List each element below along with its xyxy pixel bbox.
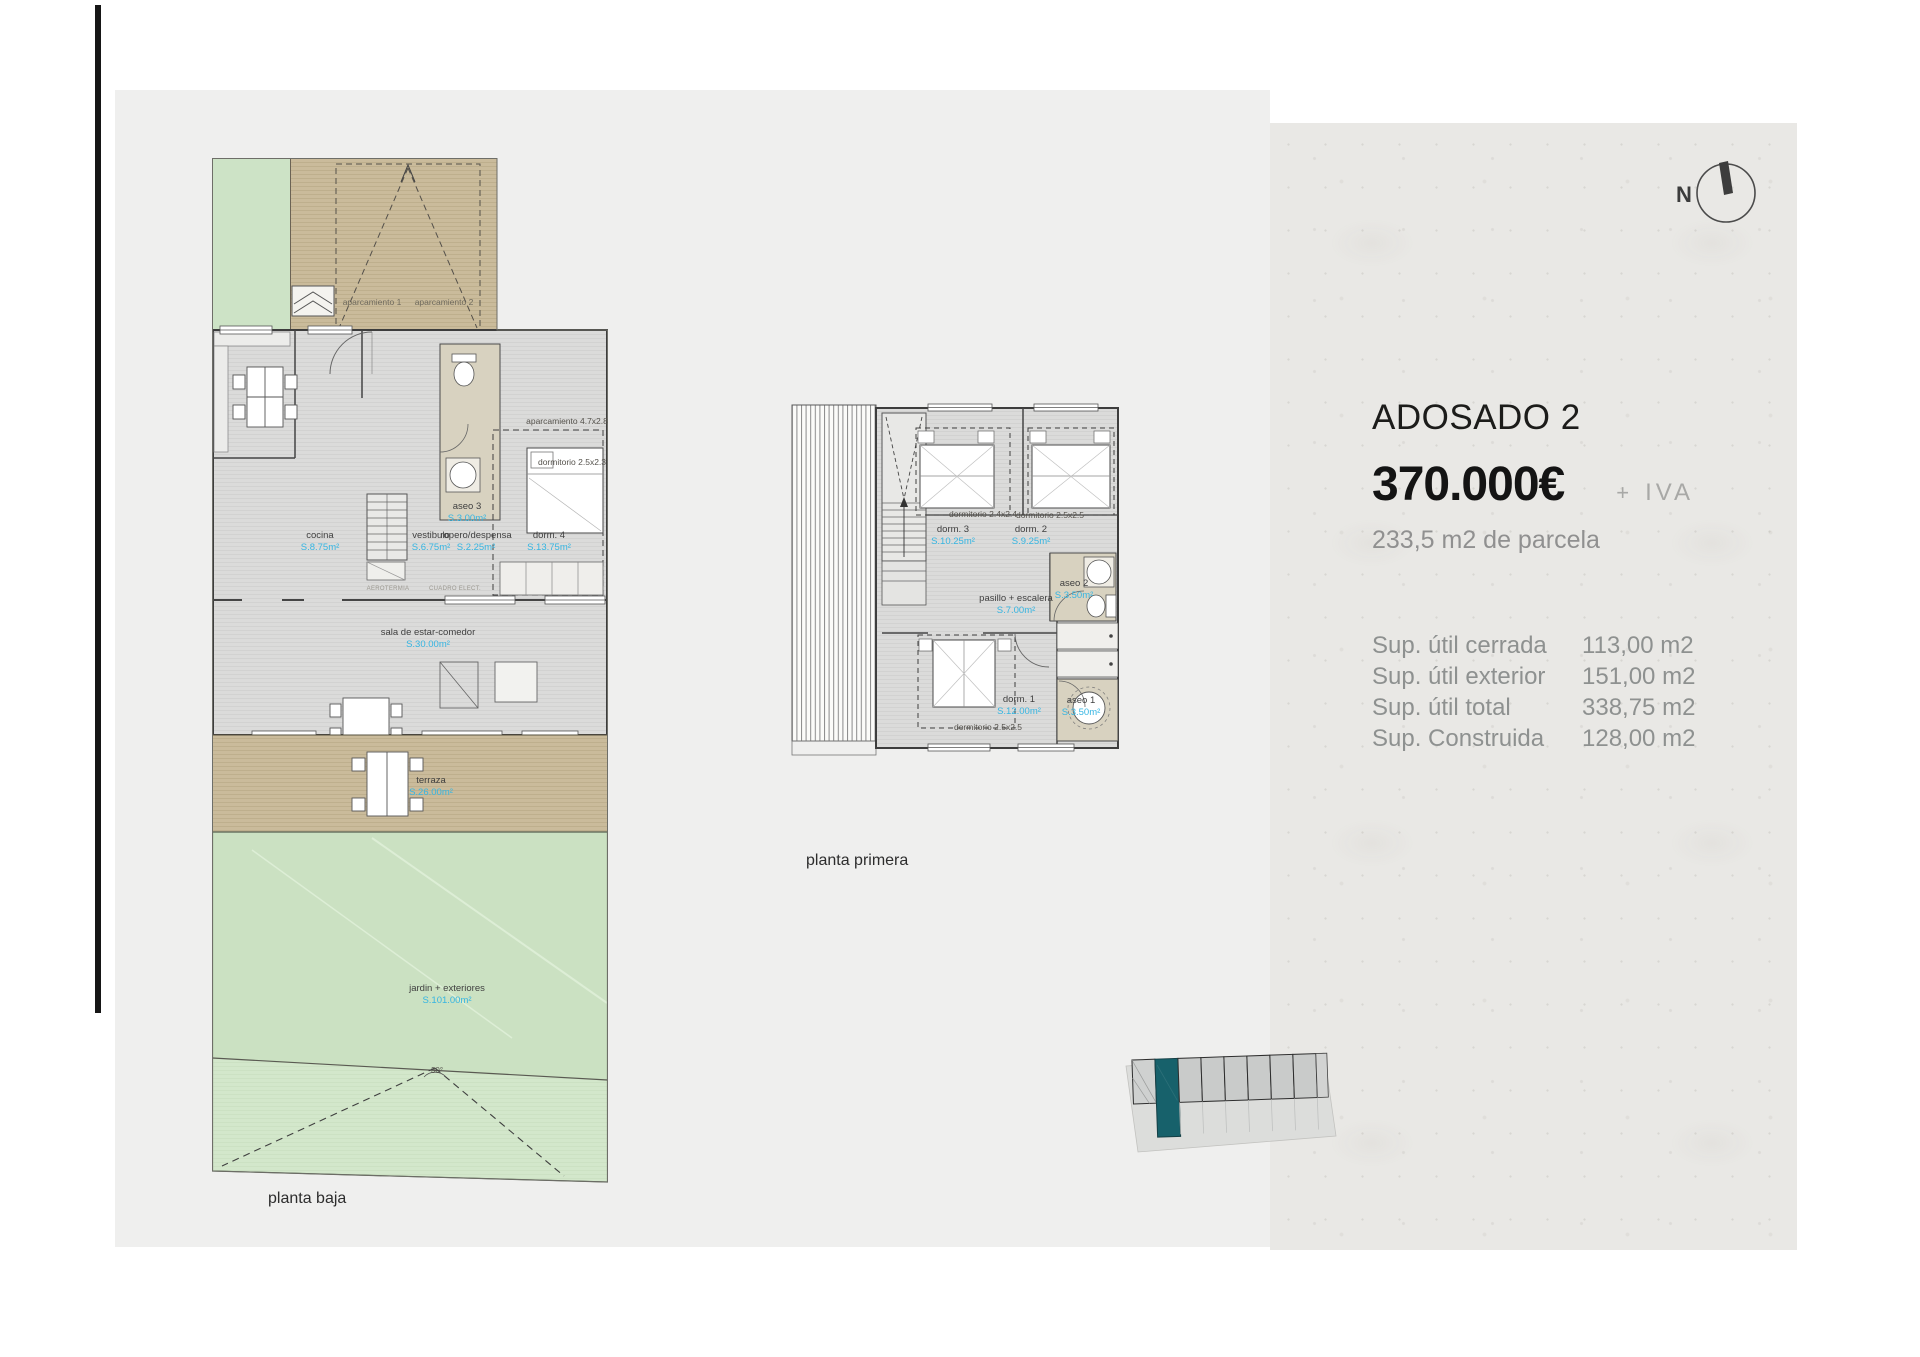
info-panel: ADOSADO 2 370.000€ + IVA 233,5 m2 de par…: [1372, 398, 1802, 555]
caption-planta-baja: planta baja: [268, 1190, 346, 1208]
garden: [213, 832, 608, 1182]
room-label-cocina: cocina S.8.75m²: [301, 530, 340, 553]
label-dormitorio-dim: dormitorio 2.5x2.3: [538, 457, 606, 467]
brochure-sheet: N ADOSADO 2 370.000€ + IVA 233,5 m2 de p…: [0, 0, 1920, 1357]
label-angle: 30°: [431, 1066, 443, 1075]
table-row: Sup. útil total 338,75 m2: [1372, 692, 1802, 723]
tax-plus: +: [1616, 480, 1629, 506]
room-label-aseo3: aseo 3 S.3.00m²: [448, 501, 487, 524]
room-label-pasillo: pasillo + escalera S.7.00m²: [979, 593, 1053, 616]
compass-icon: N: [1662, 132, 1782, 242]
tax-iva: IVA: [1645, 479, 1694, 507]
price-row: 370.000€ + IVA: [1372, 457, 1802, 512]
caption-planta-primera: planta primera: [806, 852, 908, 870]
label-aparcamiento-2: aparcamiento 2: [415, 297, 474, 307]
sideboard-icon: [495, 662, 537, 702]
room-label-dorm3: dorm. 3 S.10.25m²: [931, 524, 975, 547]
room-label-dorm4: dorm. 4 S.13.75m²: [527, 530, 571, 553]
parcel-size: 233,5 m2 de parcela: [1372, 526, 1802, 555]
room-label-aseo1: aseo 1 S.3.50m²: [1062, 695, 1101, 718]
label-dim-dorm1: dormitorio 2.5x2.5: [954, 722, 1022, 732]
pergola: [792, 405, 876, 755]
planta-baja-drawing: [212, 158, 608, 1183]
label-aparcamiento-dim: aparcamiento 4.7x2.8: [526, 416, 608, 426]
label-dim-dorm3: dormitorio 2.4x2.4: [949, 509, 1017, 519]
compass-north-label: N: [1676, 182, 1692, 207]
table-row: Sup. Construida 128,00 m2: [1372, 723, 1802, 754]
compass-needle: [1719, 161, 1733, 195]
grate-icon: [292, 286, 334, 316]
front-garden: [213, 159, 291, 331]
room-label-aseo2: aseo 2 S.3.50m²: [1055, 578, 1094, 601]
highlighted-unit: [1155, 1058, 1181, 1137]
room-label-dorm1: dorm. 1 S.12.00m²: [997, 694, 1041, 717]
room-label-jardin: jardin + exteriores S.101.00m²: [409, 983, 485, 1006]
toilet-icon: [452, 354, 476, 362]
room-label-ropero: ropero/despensa S.2.25m²: [440, 530, 511, 553]
surface-table: Sup. útil cerrada 113,00 m2 Sup. útil ex…: [1372, 630, 1802, 754]
toilet-icon: [1106, 595, 1116, 617]
label-cuadro: CUADRO ELECT.: [429, 586, 481, 592]
label-aparcamiento-1: aparcamiento 1: [343, 297, 402, 307]
room-label-sala: sala de estar-comedor S.30.00m²: [381, 627, 476, 650]
bathroom-3: [440, 344, 500, 520]
stairs-icon: [367, 494, 407, 580]
label-aerotermia: AEROTERMIA: [367, 586, 410, 592]
table-row: Sup. útil cerrada 113,00 m2: [1372, 630, 1802, 661]
table-row: Sup. útil exterior 151,00 m2: [1372, 661, 1802, 692]
label-dim-dorm2: dormitorio 2.5x2.5: [1016, 510, 1084, 520]
site-plan-key: [1118, 1046, 1350, 1164]
wardrobe-icon: [500, 562, 603, 595]
left-rule-line: [95, 5, 101, 1013]
unit-title: ADOSADO 2: [1372, 398, 1802, 438]
room-label-dorm2: dorm. 2 S.9.25m²: [1012, 524, 1051, 547]
price: 370.000€: [1372, 457, 1564, 512]
room-label-terraza: terraza S.26.00m²: [409, 775, 453, 798]
